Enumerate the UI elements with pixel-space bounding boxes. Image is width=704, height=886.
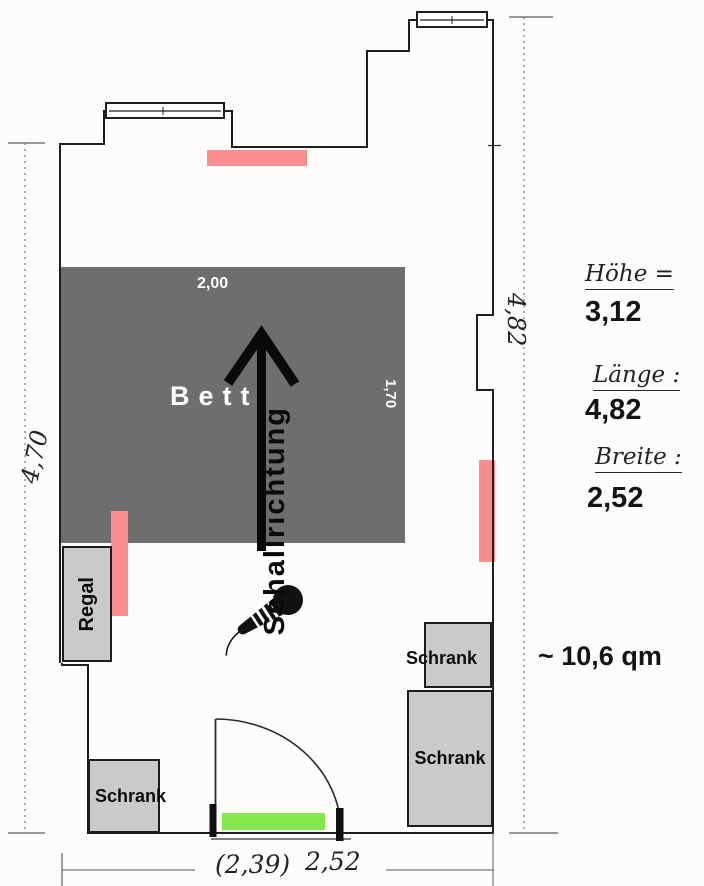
note-height-label: Höhe =	[585, 261, 674, 290]
window-left	[106, 103, 224, 118]
door-jamb-right	[336, 808, 344, 841]
bed-label: Bett	[170, 381, 259, 412]
window-right	[417, 12, 487, 27]
door-swing-arc	[216, 719, 341, 830]
cabinet-right-upper-label: Schrank	[406, 648, 477, 669]
area-note: ~ 10,6 qm	[538, 641, 662, 672]
floor-plan: Regal Schrank	[0, 0, 704, 886]
dim-right-value: 4,82	[502, 293, 530, 346]
note-width-label: Breite :	[595, 444, 682, 473]
note-length-label: Länge :	[593, 362, 680, 391]
cabinet-bottom-left-label: Schrank	[95, 786, 166, 807]
bed-length-dim: 1,70	[382, 379, 399, 408]
bed-width-dim: 2,00	[197, 275, 228, 293]
plan-drawing	[0, 0, 704, 886]
dim-bottom-value: 2,52	[305, 847, 361, 876]
note-height-value: 3,12	[585, 296, 641, 329]
note-length-value: 4,82	[585, 394, 641, 427]
door-jamb-left	[210, 804, 217, 837]
note-width-value: 2,52	[587, 482, 643, 515]
dim-line-right	[509, 17, 558, 833]
dim-bottom-old-value: (2,39)	[215, 850, 290, 879]
sound-direction-label: Schallrichtung	[259, 406, 292, 635]
